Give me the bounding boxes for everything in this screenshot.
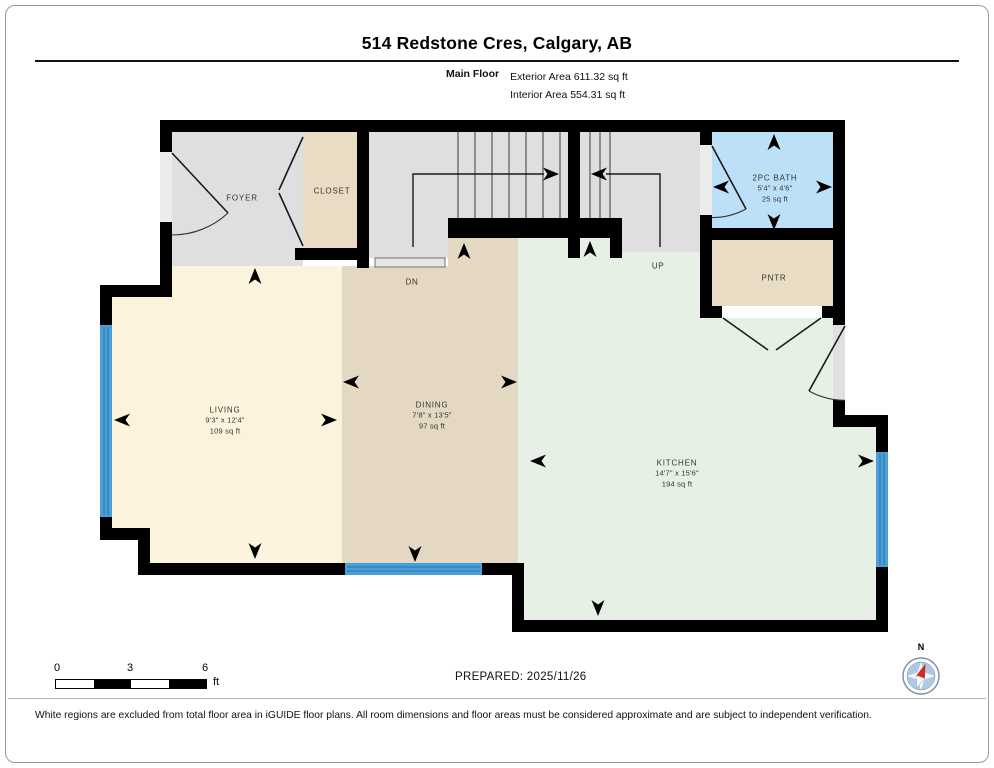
room-label-pantry: PNTR [762, 274, 787, 283]
room-label-foyer: FOYER [226, 194, 258, 203]
scale-unit: ft [213, 676, 219, 688]
room-label-kitchen: KITCHEN 14'7" x 15'6" 194 sq ft [655, 459, 699, 490]
room-label-bath: 2PC BATH 5'4" x 4'6" 25 sq ft [753, 174, 798, 205]
stairs-up-label: UP [652, 262, 664, 271]
scale-bar: 0 3 6 ft [55, 662, 285, 692]
stairs-down-label: DN [406, 278, 419, 287]
hallway-floor [622, 218, 700, 252]
scale-mid: 3 [127, 662, 133, 674]
room-fills [112, 132, 876, 620]
scale-start: 0 [54, 662, 60, 674]
room-label-closet: CLOSET [314, 187, 351, 196]
room-label-dining: DINING 7'8" x 13'5" 97 sq ft [412, 401, 451, 432]
bath-door-opening [700, 145, 712, 215]
entry-door-opening [160, 152, 172, 222]
stairwell-edge [375, 258, 445, 267]
compass-icon [903, 658, 939, 694]
prepared-date: PREPARED: 2025/11/26 [455, 671, 587, 683]
stairs-down-landing [369, 218, 448, 258]
north-label: N [918, 642, 925, 652]
stairs-down-floor [369, 132, 568, 218]
kitchen-window [876, 452, 888, 567]
living-window [100, 325, 112, 517]
floor-plan [0, 0, 994, 768]
disclaimer-text: White regions are excluded from total fl… [35, 710, 872, 721]
footer-divider [8, 698, 986, 699]
floorplan-page: 514 Redstone Cres, Calgary, AB Main Floo… [0, 0, 994, 768]
scale-end: 6 [202, 662, 208, 674]
room-label-living: LIVING 9'3" x 12'4" 109 sq ft [205, 406, 244, 437]
dining-window [345, 563, 482, 575]
scale-bar-segments [55, 679, 207, 689]
